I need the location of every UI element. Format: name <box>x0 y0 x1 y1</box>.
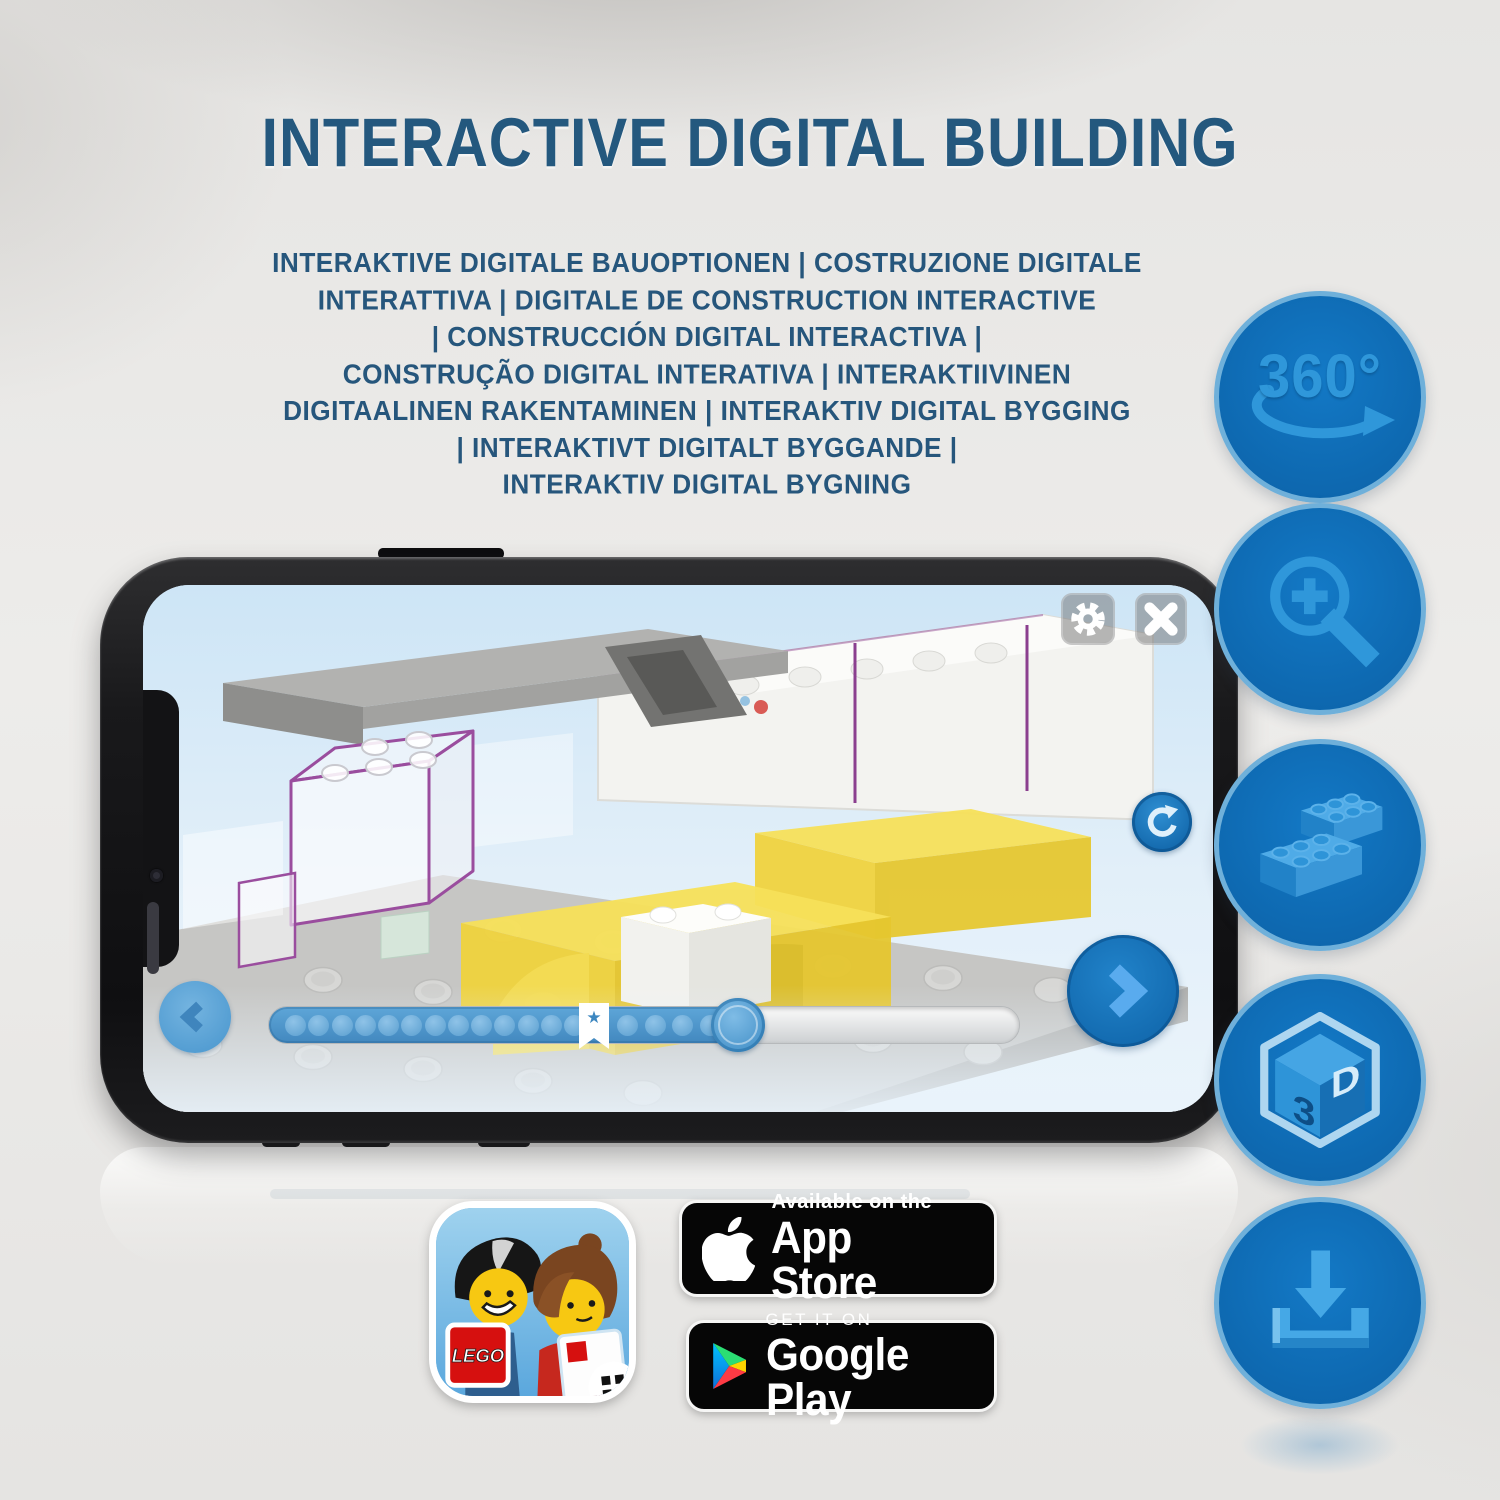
360-label: 360° <box>1258 341 1382 411</box>
google-play-badge[interactable]: GET IT ON Google Play <box>686 1320 997 1412</box>
download-icon <box>1255 1238 1385 1368</box>
apple-icon <box>702 1217 755 1281</box>
progress-dot <box>494 1015 515 1036</box>
lego-bricks-icon <box>1250 775 1390 915</box>
subtitle-line: DIGITAALINEN RAKENTAMINEN | INTERAKTIV D… <box>77 393 1338 430</box>
marketing-page: INTERACTIVE DIGITAL BUILDING INTERAKTIVE… <box>0 0 1500 1500</box>
slider-handle[interactable] <box>711 998 765 1052</box>
progress-dot <box>672 1015 693 1036</box>
close-icon <box>1142 600 1180 638</box>
smartphone-frame: ★ <box>100 557 1238 1143</box>
star-icon: ★ <box>586 1008 601 1028</box>
progress-dot <box>518 1015 539 1036</box>
subtitle-line: CONSTRUÇÃO DIGITAL INTERATIVA | INTERAKT… <box>77 356 1338 393</box>
phone-reflection <box>100 1147 1238 1265</box>
feature-download <box>1214 1197 1426 1409</box>
progress-dot <box>645 1015 666 1036</box>
progress-dot <box>541 1015 562 1036</box>
rotate-model-button[interactable] <box>1132 792 1192 852</box>
feature-360-rotation: 360° <box>1214 291 1426 503</box>
chevron-left-icon <box>177 999 213 1035</box>
zoom-in-icon <box>1256 545 1384 673</box>
lego-app-icon[interactable]: LEGO <box>429 1201 636 1403</box>
subtitle-multilingual: INTERAKTIVE DIGITALE BAUOPTIONEN | COSTR… <box>77 245 1338 503</box>
page-title: INTERACTIVE DIGITAL BUILDING <box>30 104 1470 182</box>
app-store-tagline: Available on the <box>771 1192 980 1212</box>
google-play-tagline: GET IT ON <box>766 1311 982 1328</box>
subtitle-line: | CONSTRUCCIÓN DIGITAL INTERACTIVA | <box>77 319 1338 356</box>
progress-dots-before <box>285 1015 585 1036</box>
lego-app-artwork: LEGO <box>436 1208 631 1398</box>
subtitle-line: INTERAKTIVE DIGITALE BAUOPTIONEN | COSTR… <box>77 245 1338 282</box>
progress-dot <box>617 1015 638 1036</box>
3d-cube-icon: 3 D <box>1252 1012 1388 1148</box>
phone-notch <box>143 690 179 967</box>
build-progress-slider[interactable]: ★ <box>268 1006 1020 1044</box>
cube-face-3: 3 <box>1293 1086 1316 1137</box>
settings-button[interactable] <box>1061 593 1115 645</box>
feature-reflection <box>1240 1415 1400 1475</box>
feature-zoom <box>1214 503 1426 715</box>
google-play-name: Google Play <box>766 1332 969 1422</box>
subtitle-line: INTERAKTIV DIGITAL BYGNING <box>77 467 1338 504</box>
lego-app-screen: ★ <box>143 585 1213 1112</box>
app-store-badge[interactable]: Available on the App Store <box>679 1200 997 1297</box>
progress-dot <box>355 1015 376 1036</box>
progress-dot <box>285 1015 306 1036</box>
subtitle-line: INTERATTIVA | DIGITALE DE CONSTRUCTION I… <box>77 282 1338 319</box>
progress-dot <box>378 1015 399 1036</box>
feature-3d-view: 3 D <box>1214 974 1426 1186</box>
progress-dot <box>448 1015 469 1036</box>
progress-dot <box>471 1015 492 1036</box>
rotate-arrow-icon <box>1143 803 1181 841</box>
lego-logo-text: LEGO <box>452 1345 505 1366</box>
progress-dot <box>308 1015 329 1036</box>
feature-bricks <box>1214 739 1426 951</box>
progress-dot <box>425 1015 446 1036</box>
play-triangle-icon <box>707 1337 750 1395</box>
progress-dot <box>332 1015 353 1036</box>
subtitle-line: | INTERAKTIVT DIGITALT BYGGANDE | <box>77 430 1338 467</box>
progress-dot <box>401 1015 422 1036</box>
chevron-right-icon <box>1096 964 1150 1018</box>
next-step-button[interactable] <box>1067 935 1179 1047</box>
close-button[interactable] <box>1135 593 1187 645</box>
previous-step-button[interactable] <box>159 981 231 1053</box>
app-store-name: App Store <box>771 1215 967 1305</box>
gear-icon <box>1067 598 1109 640</box>
progress-dots-after <box>617 1015 721 1036</box>
front-camera <box>150 869 163 882</box>
earpiece-speaker <box>147 902 159 974</box>
